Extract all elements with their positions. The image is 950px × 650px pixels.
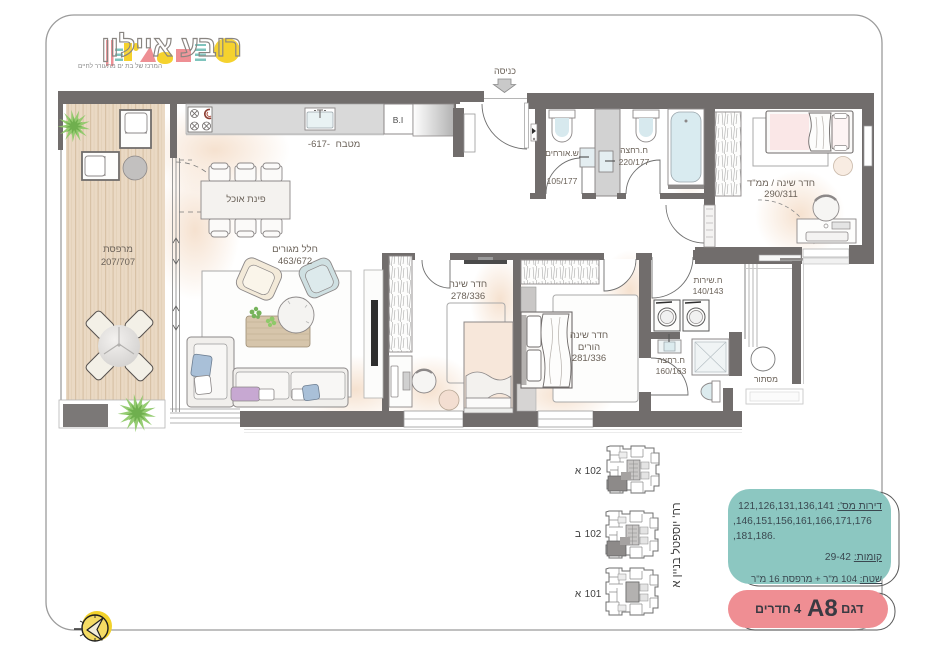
svg-text:207/707: 207/707 (101, 257, 135, 268)
svg-text:102: 102 (585, 466, 602, 477)
svg-text:הורים: הורים (578, 342, 600, 353)
svg-text:ח.רחצה: ח.רחצה (657, 355, 685, 365)
svg-text:רח' יוספטל בניין א: רח' יוספטל בניין א (670, 502, 683, 587)
svg-text:ח.שירות: ח.שירות (694, 275, 723, 285)
svg-text:פינת אוכל: פינת אוכל (226, 193, 266, 205)
svg-text:א: א (575, 466, 582, 477)
svg-text:140/143: 140/143 (693, 286, 724, 296)
svg-text:חדר שינה: חדר שינה (449, 279, 487, 290)
svg-text:278/336: 278/336 (451, 291, 485, 302)
svg-text:ח.רחצה: ח.רחצה (620, 145, 648, 155)
svg-text:חדר שינה: חדר שינה (570, 330, 608, 341)
svg-text:חדר שינה / ממ"ד: חדר שינה / ממ"ד (747, 178, 815, 189)
svg-text:290/311: 290/311 (764, 189, 798, 200)
svg-text:281/336: 281/336 (572, 353, 606, 364)
svg-text:463/672: 463/672 (278, 256, 312, 267)
svg-text:ש.אורחים: ש.אורחים (545, 148, 579, 158)
svg-text:101: 101 (585, 589, 602, 600)
svg-text:מסתור: מסתור (754, 374, 778, 384)
svg-text:-617-: -617- (308, 139, 330, 150)
svg-text:105/177: 105/177 (547, 176, 578, 186)
svg-text:160/163: 160/163 (656, 366, 687, 376)
svg-text:כניסה: כניסה (494, 66, 516, 76)
svg-text:ב: ב (575, 529, 581, 540)
svg-text:חלל מגורים: חלל מגורים (272, 243, 318, 255)
svg-text:א: א (575, 589, 582, 600)
svg-text:מטבח: מטבח (336, 139, 361, 150)
svg-text:220/177: 220/177 (619, 157, 650, 167)
svg-text:B.I: B.I (393, 115, 403, 125)
svg-text:מרפסת: מרפסת (103, 244, 133, 255)
svg-text:102: 102 (585, 529, 602, 540)
